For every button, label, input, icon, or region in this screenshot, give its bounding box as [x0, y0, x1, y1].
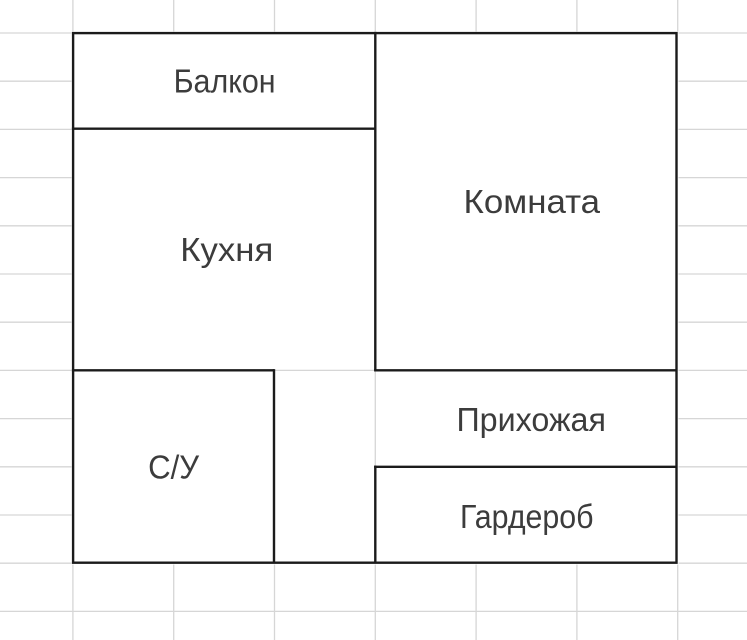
svg-text:Прихожая: Прихожая [456, 402, 606, 439]
svg-text:Комната: Комната [464, 184, 601, 221]
svg-text:С/У: С/У [148, 450, 200, 487]
svg-text:Балкон: Балкон [174, 64, 276, 101]
svg-text:Гардероб: Гардероб [460, 499, 594, 536]
svg-text:Кухня: Кухня [180, 232, 273, 269]
